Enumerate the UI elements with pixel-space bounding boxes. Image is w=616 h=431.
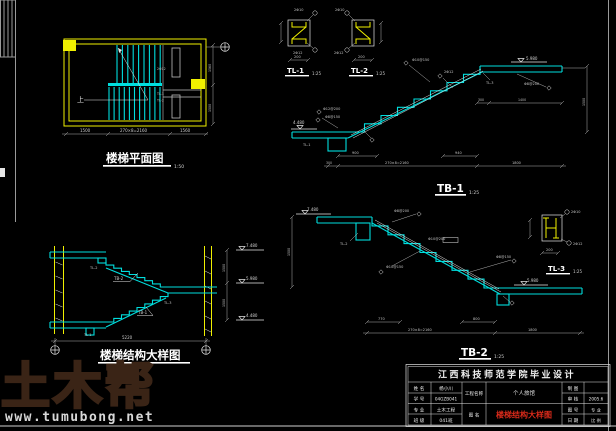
tb-row1-label: 姓 名 [414,385,425,392]
tl1-label: TL-1 [287,67,304,75]
plan-dim-right: 1560 [180,128,191,133]
tb-right2-label: 审 核 [568,396,579,403]
tb-right3-label: 图 号 [568,408,579,414]
plan-dim-side-top: 1560 [208,64,212,72]
tb1-dim-b: 270×8=2160 [385,161,409,165]
plan-dim-mid: 270×8=2160 [120,128,148,133]
tb-far2: 2005.6 [589,397,604,402]
tl2-top-bar: 2Φ10 [335,8,344,12]
tb-row4-value: 041班 [439,417,453,424]
detail-tl2: 2Φ10 2Φ12 200 TL-2 1:25 [334,8,385,76]
section-tag-tb2: TB-2 [113,276,124,281]
section-dim-total: 5220 [122,335,133,340]
tb1-dim-side: 1500 [582,98,586,106]
detail-tl3: 2Φ10 2Φ12 200 TL-3 1:25 [528,210,582,275]
section-level-mid: 5.980 [246,276,258,281]
plan-dim-left: 1500 [80,128,91,133]
tb2-scale: 1:25 [494,354,504,360]
grid-bubble-left [51,346,60,355]
tb2-level-right: 5.980 [527,278,539,283]
tl3-top-bar: 2Φ10 [571,210,580,214]
drawing-name-label: 图 名 [469,412,480,419]
tl1-top-bar: 2Φ10 [294,8,303,12]
tb-right1-label: 制 图 [568,385,579,392]
drawing-name-red: 楼梯结构大样图 [496,410,552,420]
stair-structure-section: TL-2 TB-2 TL-3 TB-1 TL-1 5220 1500 1500 … [50,243,264,364]
tb1-dim-sub-b: 940 [455,151,462,155]
plan-beam-tag-tl1: TL-1 [156,92,164,96]
detail-tl1: 2Φ10 2Φ12 200 TL-1 1:25 [279,8,321,76]
cad-canvas: 上 2Φ12 TL-1 TL-2 1500 270×8=2160 1560 15… [0,0,616,431]
project-name: 个人旅馆 [513,389,536,397]
grid-bubble [221,43,230,52]
plan-scale: 1:50 [174,164,184,170]
tb1-label: TB-1 [437,183,464,195]
up-label: 上 [77,95,84,104]
tb2-callout-5: TL-2 [339,242,348,246]
frame-tick [0,168,5,177]
tl2-scale: 1:25 [376,71,385,76]
tb-row3-label: 专 业 [414,407,425,414]
section-tag-tl1: TL-1 [83,333,92,337]
tb1-scale: 1:25 [469,190,479,196]
tb2-label: TB-2 [461,347,488,359]
project-label: 工程名称 [465,390,484,397]
tb-row2-label: 学 号 [414,396,425,403]
tl1-width-dim: 200 [294,55,301,59]
section-dim-side-b: 1500 [222,299,226,307]
watermark: 土木帮 www.tumubong.net [1,358,157,425]
tb2-dim-sub-b: 800 [473,317,480,321]
section-tag-tb1: TB-1 [137,310,148,315]
tb1-callout-4: TL-3 [485,81,494,85]
section-tag-tl3: TL-3 [163,301,172,305]
tl3-scale: 1:25 [573,269,582,274]
tb-row2-value: 04GZB041 [435,397,458,402]
tl1-scale: 1:25 [312,71,321,76]
tb1-callout-3: Φ8@200 [524,82,539,86]
tl3-bottom-bar: 2Φ12 [573,242,582,246]
watermark-url: www.tumubong.net [5,410,154,425]
section-tag-tl2: TL-2 [89,266,98,270]
watermark-logo: 土木帮 [1,358,157,415]
tb1-dim-c: 1800 [512,161,521,165]
stair-plan-view: 上 2Φ12 TL-1 TL-2 1500 270×8=2160 1560 15… [62,39,229,170]
tb2-dim-b: 1800 [528,328,537,332]
tl2-label: TL-2 [351,67,368,75]
section-level-bottom: 4.480 [246,313,258,318]
tb-row3-value: 土木工程 [437,407,456,414]
tb-far4: 比 例 [591,417,601,424]
tb-row4-label: 班 级 [414,417,425,424]
section-tb2: 7.480 5.980 1500 Φ8@200 Φ10@200 Φ10@150 … [287,207,584,360]
school-title: 江西科技师范学院毕业设计 [438,369,576,381]
grid-bubble-right [202,346,211,355]
tl2-width-dim: 200 [358,55,365,59]
plan-highlight-square-2 [191,79,205,89]
plan-rebar-tag: 2Φ12 [157,67,166,71]
tb1-callout-6: Φ12@200 [323,107,340,111]
cad-drawing-screenshot: 上 2Φ12 TL-1 TL-2 1500 270×8=2160 1560 15… [0,0,616,431]
tb2-level-left: 7.480 [307,207,319,212]
tb2-callout-4: Φ8@150 [496,255,511,259]
plan-treads-upper [117,45,160,83]
tb1-level-top: 5.980 [526,56,538,61]
tb-right4-label: 日 期 [568,418,579,424]
section-tb1: 4.480 5.980 Φ10@150 2Φ12 Φ8@200 TL-3 Φ12… [291,56,589,196]
tb-far3: 专 业 [591,407,601,414]
tb1-dim-top-b: 1400 [518,98,526,102]
tb2-dim-a: 270×8=2160 [408,328,432,332]
plan-dims-bottom: 1500 270×8=2160 1560 [62,128,208,136]
tb1-dim-sub-a: 900 [352,151,359,155]
plan-dim-side-bottom: 1500 [208,104,212,112]
tb1-callout-2: 2Φ12 [444,70,453,74]
tb1-dim-top-a: 300 [478,98,484,102]
title-block: 江西科技师范学院毕业设计 姓 名 杨小川 学 号 04GZB041 专 业 土木… [406,365,610,427]
tb2-dim-side: 1500 [287,248,291,256]
tl2-bottom-bar: 2Φ12 [334,51,343,55]
tb1-callout-1: Φ10@150 [412,58,429,62]
section-dim-side-a: 1500 [222,264,226,272]
tb-row1-value: 杨小川 [439,385,453,392]
plan-dims-right: 1560 1500 [206,43,229,126]
section-level-top: 7.480 [246,243,258,248]
tb1-dim-a: 300 [326,161,332,165]
plan-title: 楼梯平面图 [106,151,164,165]
tb2-callout-1: Φ8@200 [394,209,409,213]
tb2-callout-3: Φ10@150 [386,265,403,269]
tb1-callout-5: Φ8@150 [325,115,340,119]
tb1-level-left: 4.480 [293,120,305,125]
plan-treads-lower [109,87,160,120]
tl3-label: TL-3 [548,265,565,273]
plan-beam-tag-tl2: TL-2 [156,99,164,103]
tb2-dim-sub-a: 770 [378,317,385,321]
plan-highlight-square-1 [63,40,76,51]
tb1-callout-7: TL-1 [302,143,311,147]
tl3-width-dim: 200 [546,248,553,252]
